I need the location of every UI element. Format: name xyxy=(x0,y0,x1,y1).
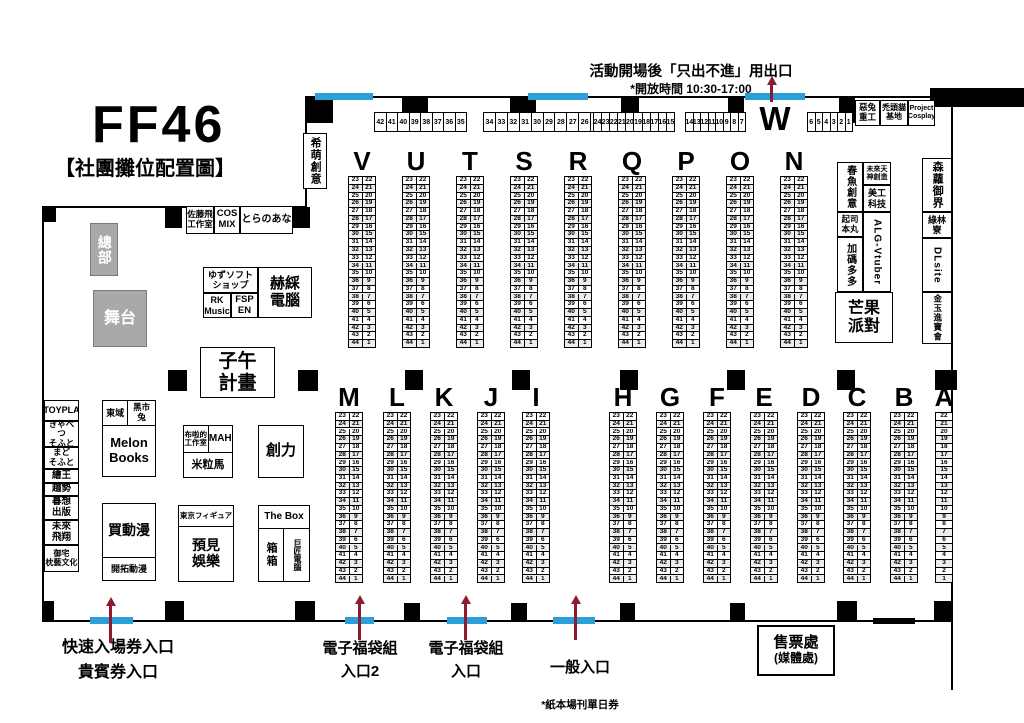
booth-pair: 387 xyxy=(403,293,429,301)
booth-pair: 405 xyxy=(727,309,753,317)
booth-number: 32 xyxy=(727,247,741,254)
booth-pair: 2322 xyxy=(403,177,429,185)
booth-column-grid-B: 2322242125202619271828172916301531143213… xyxy=(890,412,918,583)
booth-number: 14 xyxy=(417,239,430,246)
wall-booth-number: 22 xyxy=(610,113,618,131)
booth-number: 40 xyxy=(704,545,718,552)
booth-pair: 3114 xyxy=(610,475,636,483)
booth-number: 4 xyxy=(579,317,592,324)
booth-number: 3 xyxy=(471,325,484,332)
wall-booth-number: 1 xyxy=(846,113,853,131)
booth-pair: 2322 xyxy=(478,413,504,421)
booth-number: 13 xyxy=(765,483,778,490)
booth-number: 14 xyxy=(525,239,538,246)
booth-number: 33 xyxy=(781,255,795,262)
booth-number: 32 xyxy=(457,247,471,254)
entrance-arrow xyxy=(574,602,577,640)
booth-number: 32 xyxy=(523,483,537,490)
booth-pair: 2718 xyxy=(565,208,591,216)
booth-number: 5 xyxy=(417,309,430,316)
booth-number: 31 xyxy=(844,475,858,482)
booth-number: 21 xyxy=(525,185,538,192)
booth-number: 5 xyxy=(936,545,952,552)
booth-number: 10 xyxy=(633,270,646,277)
booth-number: 10 xyxy=(812,506,825,513)
booth-number: 28 xyxy=(565,216,579,223)
booth-number: 42 xyxy=(781,325,795,332)
wall-pillar xyxy=(165,207,182,228)
booth-pair: 378 xyxy=(673,286,699,294)
booth-number: 40 xyxy=(349,309,363,316)
booth-number: 3 xyxy=(858,560,871,567)
booth-pair: 378 xyxy=(336,521,362,529)
booth-pair: 17 xyxy=(936,452,952,460)
booth-pair: 2520 xyxy=(704,428,730,436)
booth-pair: 21 xyxy=(936,421,952,429)
booth-number: 42 xyxy=(727,325,741,332)
booth-number: 9 xyxy=(671,514,684,521)
booth-rk-music: RK Music xyxy=(203,293,231,318)
booth-number: 23 xyxy=(610,413,624,420)
booth-pair: 378 xyxy=(844,521,870,529)
booth-number: 21 xyxy=(398,421,411,428)
booth-number: 41 xyxy=(657,552,671,559)
booth-number: 38 xyxy=(511,294,525,301)
booth-qisi: 起司 本丸 xyxy=(837,212,863,237)
booth-number: 43 xyxy=(349,332,363,339)
booth-number: 42 xyxy=(431,560,445,567)
booth-number: 26 xyxy=(511,200,525,207)
booth-pair: 5 xyxy=(936,544,952,552)
booth-number: 7 xyxy=(350,529,363,536)
booth-number: 7 xyxy=(671,529,684,536)
booth-number: 18 xyxy=(525,208,538,215)
booth-pair: 441 xyxy=(336,575,362,582)
booth-number: 6 xyxy=(398,537,411,544)
booth-pair: 2916 xyxy=(727,224,753,232)
column-letter-A: A xyxy=(929,382,959,413)
booth-number: 10 xyxy=(795,270,808,277)
booth-number: 17 xyxy=(765,452,778,459)
booth-number: 17 xyxy=(718,452,731,459)
booth-number: 36 xyxy=(431,514,445,521)
booth-number: 40 xyxy=(523,545,537,552)
booth-number: 13 xyxy=(687,247,700,254)
column-letter-G: G xyxy=(655,382,685,413)
booth-number: 37 xyxy=(403,286,417,293)
booth-number: 2 xyxy=(445,568,458,575)
booth-pair: 2817 xyxy=(751,452,777,460)
booth-pair: 432 xyxy=(403,332,429,340)
booth-pair: 423 xyxy=(704,560,730,568)
booth-number: 41 xyxy=(798,552,812,559)
booth-number: 15 xyxy=(795,231,808,238)
booth-pair: 2322 xyxy=(431,413,457,421)
booth-number: 3 xyxy=(718,560,731,567)
booth-number: 4 xyxy=(741,317,754,324)
booth-pair: 2421 xyxy=(751,421,777,429)
booth-number: 37 xyxy=(610,521,624,528)
booth-number: 15 xyxy=(633,231,646,238)
booth-number: 31 xyxy=(523,475,537,482)
booth-pair: 441 xyxy=(673,340,699,347)
booth-number: 39 xyxy=(431,537,445,544)
booth-number: 23 xyxy=(457,177,471,184)
booth-number: 40 xyxy=(673,309,687,316)
booth-pair: 387 xyxy=(781,293,807,301)
booth-number: 20 xyxy=(671,429,684,436)
booth-pair: 2421 xyxy=(704,421,730,429)
booth-pair: 2421 xyxy=(431,421,457,429)
booth-number: 14 xyxy=(936,475,952,482)
booth-number: 40 xyxy=(403,309,417,316)
booth-number: 40 xyxy=(565,309,579,316)
booth-number: 23 xyxy=(781,177,795,184)
booth-number: 13 xyxy=(858,483,871,490)
booth-number: 23 xyxy=(673,177,687,184)
booth-number: 38 xyxy=(384,529,398,536)
booth-number: 1 xyxy=(765,576,778,583)
booth-pair: 2916 xyxy=(891,459,917,467)
booth-pair: 369 xyxy=(751,514,777,522)
booth-number: 11 xyxy=(795,263,808,270)
booth-pair: 2322 xyxy=(673,177,699,185)
booth-number: 36 xyxy=(384,514,398,521)
booth-number: 14 xyxy=(350,475,363,482)
booth-melon-books: Melon Books xyxy=(103,426,155,476)
booth-number: 12 xyxy=(812,490,825,497)
booth-pair: 2817 xyxy=(565,216,591,224)
booth-pair: 369 xyxy=(610,514,636,522)
booth-number: 32 xyxy=(844,483,858,490)
booth-number: 26 xyxy=(798,436,812,443)
booth-pair: 2322 xyxy=(891,413,917,421)
booth-pair: 387 xyxy=(891,529,917,537)
booth-chunyu: 春魚創意 xyxy=(837,162,863,212)
booth-pair: 10 xyxy=(936,506,952,514)
booth-toypla: TOYPLA xyxy=(44,400,79,421)
booth-number: 2 xyxy=(350,568,363,575)
booth-number: 22 xyxy=(492,413,505,420)
booth-pair: 2817 xyxy=(673,216,699,224)
booth-number: 37 xyxy=(844,521,858,528)
booth-number: 35 xyxy=(478,506,492,513)
booth-number: 13 xyxy=(795,247,808,254)
booth-number: 32 xyxy=(384,483,398,490)
booth-number: 4 xyxy=(350,552,363,559)
booth-number: 20 xyxy=(795,193,808,200)
booth-number: 20 xyxy=(741,193,754,200)
booth-number: 1 xyxy=(350,576,363,583)
booth-hq: 總部 xyxy=(90,223,118,276)
booth-pair: 2619 xyxy=(565,200,591,208)
booth-number: 9 xyxy=(398,514,411,521)
booth-pair: 441 xyxy=(478,575,504,582)
booth-pair: 405 xyxy=(478,544,504,552)
booth-pair: 378 xyxy=(704,521,730,529)
page-subtitle: 【社團攤位配置圖】 xyxy=(55,152,235,181)
booth-number: 37 xyxy=(336,521,350,528)
booth-number: 44 xyxy=(727,340,741,347)
booth-pair: 3312 xyxy=(619,255,645,263)
booth-number: 25 xyxy=(891,429,905,436)
booth-number: 36 xyxy=(704,514,718,521)
booth-number: 38 xyxy=(478,529,492,536)
booth-number: 24 xyxy=(657,421,671,428)
booth-number: 24 xyxy=(457,185,471,192)
booth-pair: 3213 xyxy=(336,483,362,491)
booth-number: 35 xyxy=(673,270,687,277)
booth-number: 29 xyxy=(844,460,858,467)
booth-number: 39 xyxy=(619,301,633,308)
booth-pair: 3114 xyxy=(798,475,824,483)
booth-pair: 4 xyxy=(936,552,952,560)
booth-number: 16 xyxy=(417,224,430,231)
booth-number: 27 xyxy=(523,444,537,451)
booth-pair: 2619 xyxy=(384,436,410,444)
booth-number: 44 xyxy=(891,576,905,583)
wall-pillar xyxy=(404,603,420,621)
booth-number: 30 xyxy=(781,231,795,238)
booth-number: 5 xyxy=(812,545,825,552)
booth-pair: 2619 xyxy=(727,200,753,208)
booth-number: 17 xyxy=(624,452,637,459)
booth-number: 30 xyxy=(349,231,363,238)
booth-number: 16 xyxy=(687,224,700,231)
booth-number: 2 xyxy=(795,332,808,339)
booth-pair: 2322 xyxy=(727,177,753,185)
booth-number: 30 xyxy=(478,467,492,474)
booth-number: 16 xyxy=(765,460,778,467)
booth-pair: 423 xyxy=(403,325,429,333)
booth-number: 10 xyxy=(525,270,538,277)
booth-pair: 22 xyxy=(936,413,952,421)
booth-number: 36 xyxy=(844,514,858,521)
booth-number: 14 xyxy=(624,475,637,482)
booth-number: 19 xyxy=(525,200,538,207)
booth-number: 27 xyxy=(727,208,741,215)
booth-number: 24 xyxy=(384,421,398,428)
booth-pair: 3312 xyxy=(657,490,683,498)
booth-number: 43 xyxy=(657,568,671,575)
booth-pair: 3411 xyxy=(565,262,591,270)
booth-number: 16 xyxy=(718,460,731,467)
booth-pair: 3114 xyxy=(457,239,483,247)
booth-pair: 3510 xyxy=(511,270,537,278)
booth-number: 42 xyxy=(403,325,417,332)
booth-pair: 2916 xyxy=(704,459,730,467)
booth-lvlin: 綠林 寮 xyxy=(922,212,952,238)
booth-number: 12 xyxy=(363,255,376,262)
booth-pair: 3015 xyxy=(457,231,483,239)
booth-number: 34 xyxy=(349,263,363,270)
booth-pair: 3312 xyxy=(565,255,591,263)
booth-number: 20 xyxy=(812,429,825,436)
booth-number: 43 xyxy=(384,568,398,575)
booth-number: 19 xyxy=(350,436,363,443)
booth-pair: 423 xyxy=(349,325,375,333)
booth-pair: 396 xyxy=(431,537,457,545)
booth-number: 8 xyxy=(687,286,700,293)
booth-number: 30 xyxy=(727,231,741,238)
booth-number: 26 xyxy=(457,200,471,207)
booth-number: 30 xyxy=(610,467,624,474)
booth-number: 4 xyxy=(624,552,637,559)
booth-number: 26 xyxy=(619,200,633,207)
booth-number: 43 xyxy=(511,332,525,339)
booth-number: 7 xyxy=(363,294,376,301)
booth-pair: 441 xyxy=(844,575,870,582)
booth-pair: 2421 xyxy=(844,421,870,429)
booth-number: 35 xyxy=(619,270,633,277)
booth-number: 11 xyxy=(525,263,538,270)
booth-pair: 2916 xyxy=(336,459,362,467)
booth-number: 33 xyxy=(891,490,905,497)
booth-pair: 405 xyxy=(457,309,483,317)
booth-number: 10 xyxy=(579,270,592,277)
booth-pair: 3114 xyxy=(511,239,537,247)
booth-number: 10 xyxy=(671,506,684,513)
booth-number: 6 xyxy=(795,301,808,308)
wall-door-mark xyxy=(873,618,915,624)
booth-number: 27 xyxy=(565,208,579,215)
booth-number: 13 xyxy=(492,483,505,490)
booth-number: 1 xyxy=(525,340,538,347)
booth-number: 9 xyxy=(765,514,778,521)
booth-pair: 2520 xyxy=(844,428,870,436)
booth-pair: 2718 xyxy=(891,444,917,452)
booth-pair: 3411 xyxy=(844,498,870,506)
booth-number: 21 xyxy=(445,421,458,428)
booth-number: 21 xyxy=(579,185,592,192)
booth-number: 21 xyxy=(741,185,754,192)
booth-pair: 2916 xyxy=(565,224,591,232)
booth-number: 37 xyxy=(523,521,537,528)
booth-number: 4 xyxy=(905,552,918,559)
booth-number: 33 xyxy=(523,490,537,497)
booth-number: 29 xyxy=(657,460,671,467)
booth-number: 18 xyxy=(417,208,430,215)
booth-pair: 3015 xyxy=(798,467,824,475)
booth-number: 2 xyxy=(363,332,376,339)
booth-number: 29 xyxy=(727,224,741,231)
booth-pair: 2421 xyxy=(511,185,537,193)
booth-number: 28 xyxy=(336,452,350,459)
booth-number: 21 xyxy=(633,185,646,192)
booth-pair: 414 xyxy=(336,552,362,560)
booth-pair: 441 xyxy=(403,340,429,347)
booth-number: 1 xyxy=(671,576,684,583)
booth-number: 31 xyxy=(478,475,492,482)
booth-column-grid-M: 2322242125202619271828172916301531143213… xyxy=(335,412,363,583)
booth-number: 2 xyxy=(858,568,871,575)
booth-pair: 369 xyxy=(403,278,429,286)
booth-number: 26 xyxy=(478,436,492,443)
booth-pair: 3510 xyxy=(891,506,917,514)
booth-number: 6 xyxy=(671,537,684,544)
booth-number: 12 xyxy=(905,490,918,497)
booth-chuangli: 創力 xyxy=(258,425,304,478)
booth-pair: 3114 xyxy=(781,239,807,247)
booth-number: 13 xyxy=(671,483,684,490)
booth-number: 4 xyxy=(445,552,458,559)
booth-number: 18 xyxy=(741,208,754,215)
wall-booth-number: 28 xyxy=(555,113,567,131)
booth-number: 33 xyxy=(844,490,858,497)
booth-number: 6 xyxy=(471,301,484,308)
booth-number: 20 xyxy=(525,193,538,200)
booth-number: 12 xyxy=(492,490,505,497)
booth-pair: 405 xyxy=(704,544,730,552)
booth-pair: 2322 xyxy=(781,177,807,185)
booth-pair: 2421 xyxy=(403,185,429,193)
booth-number: 39 xyxy=(457,301,471,308)
booth-number: 35 xyxy=(511,270,525,277)
booth-number: 26 xyxy=(523,436,537,443)
booth-number: 21 xyxy=(363,185,376,192)
booth-pair: 2817 xyxy=(403,216,429,224)
booth-number: 31 xyxy=(619,239,633,246)
booth-pair: 3213 xyxy=(844,483,870,491)
booth-number: 37 xyxy=(704,521,718,528)
booth-number: 38 xyxy=(457,294,471,301)
booth-number: 24 xyxy=(673,185,687,192)
booth-number: 25 xyxy=(727,193,741,200)
booth-number: 19 xyxy=(398,436,411,443)
booth-number: 38 xyxy=(565,294,579,301)
booth-number: 42 xyxy=(478,560,492,567)
booth-number: 6 xyxy=(812,537,825,544)
booth-number: 26 xyxy=(336,436,350,443)
booth-number: 33 xyxy=(565,255,579,262)
booth-number: 28 xyxy=(610,452,624,459)
booth-pair: 2718 xyxy=(349,208,375,216)
booth-number: 24 xyxy=(751,421,765,428)
booth-number: 8 xyxy=(471,286,484,293)
booth-pair: 2421 xyxy=(384,421,410,429)
booth-pair: 3213 xyxy=(431,483,457,491)
booth-pair: 2718 xyxy=(657,444,683,452)
booth-number: 42 xyxy=(673,325,687,332)
booth-number: 30 xyxy=(384,467,398,474)
booth-number: 9 xyxy=(417,278,430,285)
booth-pair: 396 xyxy=(511,301,537,309)
booth-number: 24 xyxy=(781,185,795,192)
booth-pair: 3510 xyxy=(384,506,410,514)
booth-number: 41 xyxy=(431,552,445,559)
booth-number: 1 xyxy=(687,340,700,347)
booth-pair: 3510 xyxy=(478,506,504,514)
booth-number: 33 xyxy=(457,255,471,262)
booth-number: 28 xyxy=(891,452,905,459)
booth-number: 17 xyxy=(671,452,684,459)
booth-number: 3 xyxy=(905,560,918,567)
booth-number: 1 xyxy=(363,340,376,347)
wall-booth-strip: 24232221201918171615 xyxy=(593,112,675,132)
wall-booth-number: 6 xyxy=(808,113,816,131)
booth-number: 34 xyxy=(403,263,417,270)
booth-number: 26 xyxy=(673,200,687,207)
booth-number: 28 xyxy=(403,216,417,223)
wall-booth-number: 39 xyxy=(410,113,422,131)
booth-number: 40 xyxy=(336,545,350,552)
booth-number: 31 xyxy=(565,239,579,246)
booth-number: 22 xyxy=(936,413,952,420)
booth-number: 16 xyxy=(671,460,684,467)
exit-strip xyxy=(447,617,487,624)
booth-number: 14 xyxy=(765,475,778,482)
booth-number: 32 xyxy=(619,247,633,254)
